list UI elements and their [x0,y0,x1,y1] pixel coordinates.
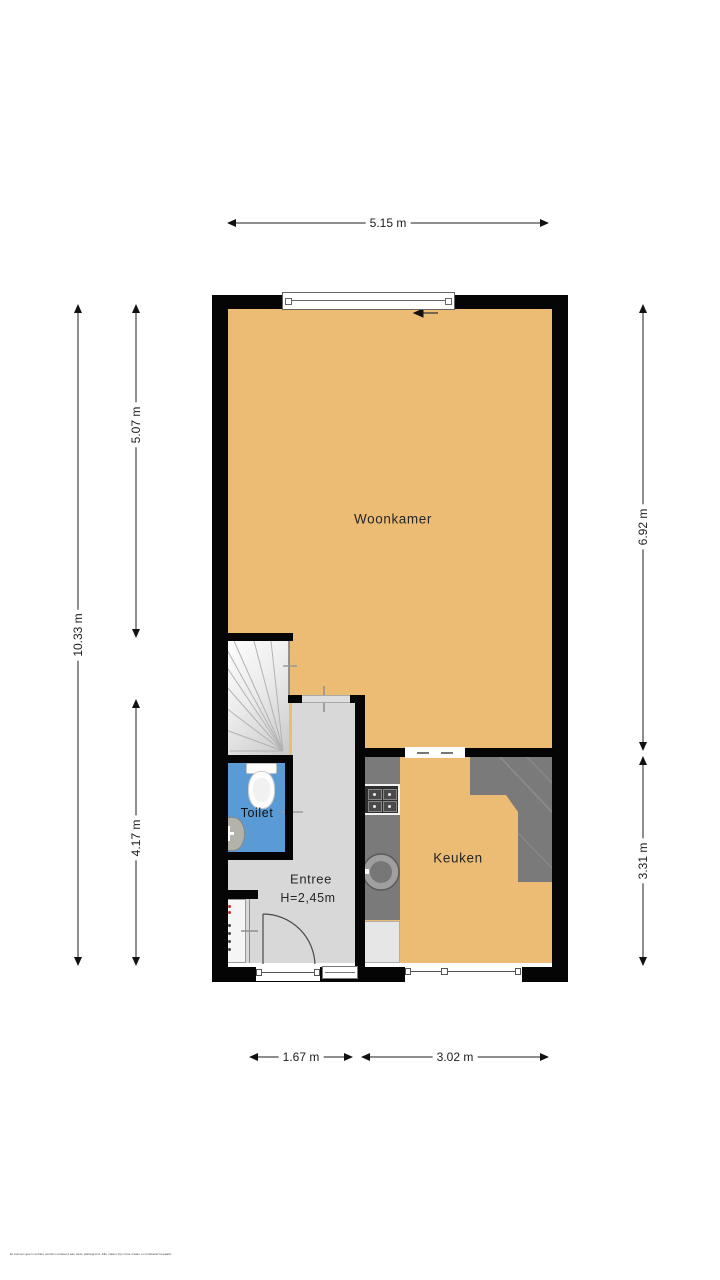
plan-overlay [0,0,720,1280]
keuken-label: Keuken [433,851,482,866]
floorplan-page: { "rooms": { "woonkamer": { "label": "Wo… [0,0,720,1280]
wall-toilet-right [285,755,293,860]
dim-left-lower: 4.17 m [129,816,143,861]
wall-toilet-bottom [222,852,293,860]
wall-keuken-top [365,748,568,757]
woonkamer-label: Woonkamer [354,512,432,527]
wall-right [552,295,568,982]
threshold-keuken [405,747,465,758]
threshold-entree [302,695,350,703]
dim-right-lower: 3.31 m [636,839,650,884]
entree-height-label: H=2,45m [280,891,335,905]
window-keuken [405,963,522,982]
dim-bottom-right: 3.02 m [433,1050,478,1064]
dim-left-total: 10.33 m [71,609,85,660]
stairs-treads [226,641,283,751]
wall-toilet-top [222,755,293,763]
dim-left-upper: 5.07 m [129,403,143,448]
front-door-threshold [256,964,320,981]
dim-bottom-left: 1.67 m [279,1050,324,1064]
sidelight-window [322,966,358,979]
floorplan-canvas: Woonkamer Keuken Toilet Entree H=2,45m 5… [0,0,720,1280]
window-top [282,292,455,310]
front-door-arc [263,914,315,966]
wall-entree-keuken [355,695,365,970]
entree-label: Entree [290,872,332,887]
disclaimer-text: Er kunnen geen rechten worden ontleend a… [10,1252,172,1256]
wall-entree-top-left [288,695,302,703]
wall-meterkast-top [222,890,258,899]
wall-stairs-top [226,633,293,641]
toilet-label: Toilet [241,806,274,820]
dim-right-upper: 6.92 m [636,505,650,550]
dim-top-width: 5.15 m [366,216,411,230]
